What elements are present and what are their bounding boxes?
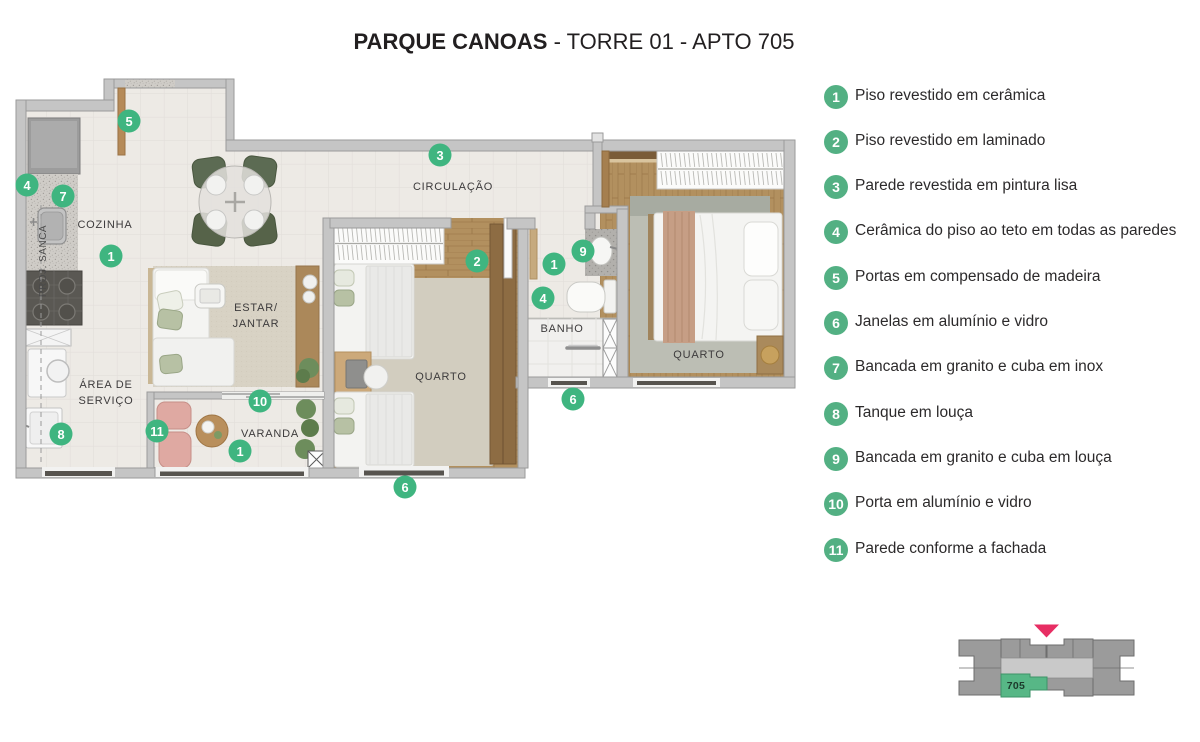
svg-text:VARANDA: VARANDA — [241, 428, 299, 440]
svg-text:ESTAR/: ESTAR/ — [234, 302, 278, 314]
svg-text:CIRCULAÇÃO: CIRCULAÇÃO — [413, 180, 493, 193]
svg-text:QUARTO: QUARTO — [415, 371, 466, 383]
svg-text:BANHO: BANHO — [540, 323, 583, 335]
svg-text:JANTAR: JANTAR — [233, 318, 280, 330]
svg-text:6: 6 — [401, 480, 408, 495]
svg-text:11: 11 — [150, 424, 164, 439]
svg-text:SERVIÇO: SERVIÇO — [79, 395, 134, 407]
svg-text:4: 4 — [23, 178, 31, 193]
svg-text:8: 8 — [57, 427, 64, 442]
svg-text:10: 10 — [253, 394, 267, 409]
svg-text:1: 1 — [107, 249, 114, 264]
svg-text:9: 9 — [579, 244, 586, 259]
svg-text:5: 5 — [125, 114, 132, 129]
svg-text:QUARTO: QUARTO — [673, 349, 724, 361]
svg-text:1: 1 — [236, 444, 243, 459]
svg-text:705: 705 — [1007, 680, 1025, 692]
svg-text:COZINHA: COZINHA — [77, 219, 132, 231]
svg-text:2: 2 — [473, 254, 480, 269]
svg-text:ÁREA DE: ÁREA DE — [79, 378, 132, 391]
svg-text:4: 4 — [539, 291, 547, 306]
svg-text:PROJ. SANCA: PROJ. SANCA — [38, 225, 49, 297]
svg-text:6: 6 — [569, 392, 576, 407]
svg-text:7: 7 — [59, 189, 66, 204]
svg-text:3: 3 — [436, 148, 443, 163]
svg-text:1: 1 — [550, 257, 557, 272]
